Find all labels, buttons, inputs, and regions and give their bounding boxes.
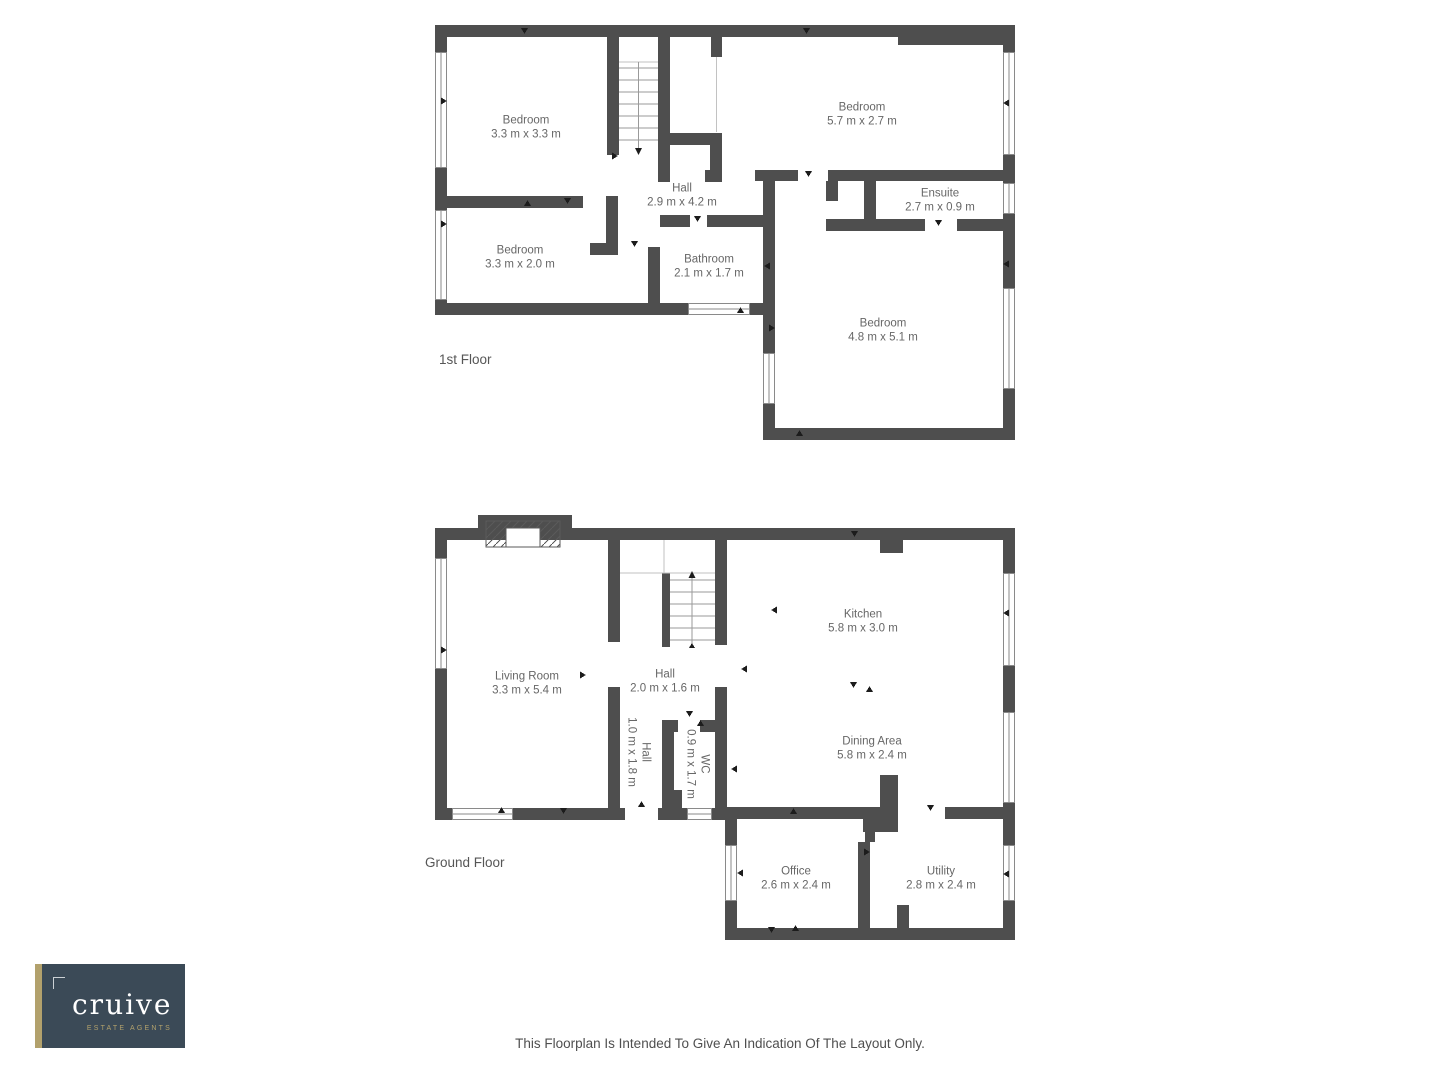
room-label-hall-first: Hall 2.9 m x 4.2 m: [647, 183, 717, 210]
disclaimer-text: This Floorplan Is Intended To Give An In…: [515, 1036, 925, 1051]
room-label-office: Office 2.6 m x 2.4 m: [761, 866, 831, 893]
door-arrows-first-floor: [441, 28, 1009, 436]
logo-gold-stripe: [35, 964, 42, 1048]
room-label-hall-ground: Hall 2.0 m x 1.6 m: [630, 669, 700, 696]
room-label-ensuite: Ensuite 2.7 m x 0.9 m: [905, 188, 975, 215]
room-label-living-room: Living Room 3.3 m x 5.4 m: [492, 671, 562, 698]
room-label-hall-lower: Hall 1.0 m x 1.8 m: [625, 717, 652, 787]
room-label-dining-area: Dining Area 5.8 m x 2.4 m: [837, 736, 907, 763]
ground-floor-title: Ground Floor: [425, 855, 505, 870]
logo-tagline: ESTATE AGENTS: [72, 1025, 172, 1032]
cruive-logo: cruive ESTATE AGENTS: [35, 964, 185, 1048]
floorplan-page: Bedroom 3.3 m x 3.3 m Bedroom 5.7 m x 2.…: [0, 0, 1440, 1080]
walls-first-floor: [435, 25, 1015, 440]
logo-brand-text: cruive: [72, 988, 172, 1021]
first-floor-title: 1st Floor: [439, 352, 492, 367]
room-label-wc: WC 0.9 m x 1.7 m: [684, 729, 711, 799]
room-label-bedroom-1: Bedroom 3.3 m x 3.3 m: [491, 115, 561, 142]
room-label-bathroom: Bathroom 2.1 m x 1.7 m: [674, 254, 744, 281]
room-label-kitchen: Kitchen 5.8 m x 3.0 m: [828, 609, 898, 636]
first-floor-plan: [425, 20, 1025, 445]
room-label-bedroom-2: Bedroom 5.7 m x 2.7 m: [827, 102, 897, 129]
logo-corner-bracket-icon: [53, 977, 65, 989]
room-label-utility: Utility 2.8 m x 2.4 m: [906, 866, 976, 893]
windows-first-floor: [436, 52, 1015, 404]
room-label-bedroom-4: Bedroom 4.8 m x 5.1 m: [848, 318, 918, 345]
room-label-bedroom-3: Bedroom 3.3 m x 2.0 m: [485, 245, 555, 272]
